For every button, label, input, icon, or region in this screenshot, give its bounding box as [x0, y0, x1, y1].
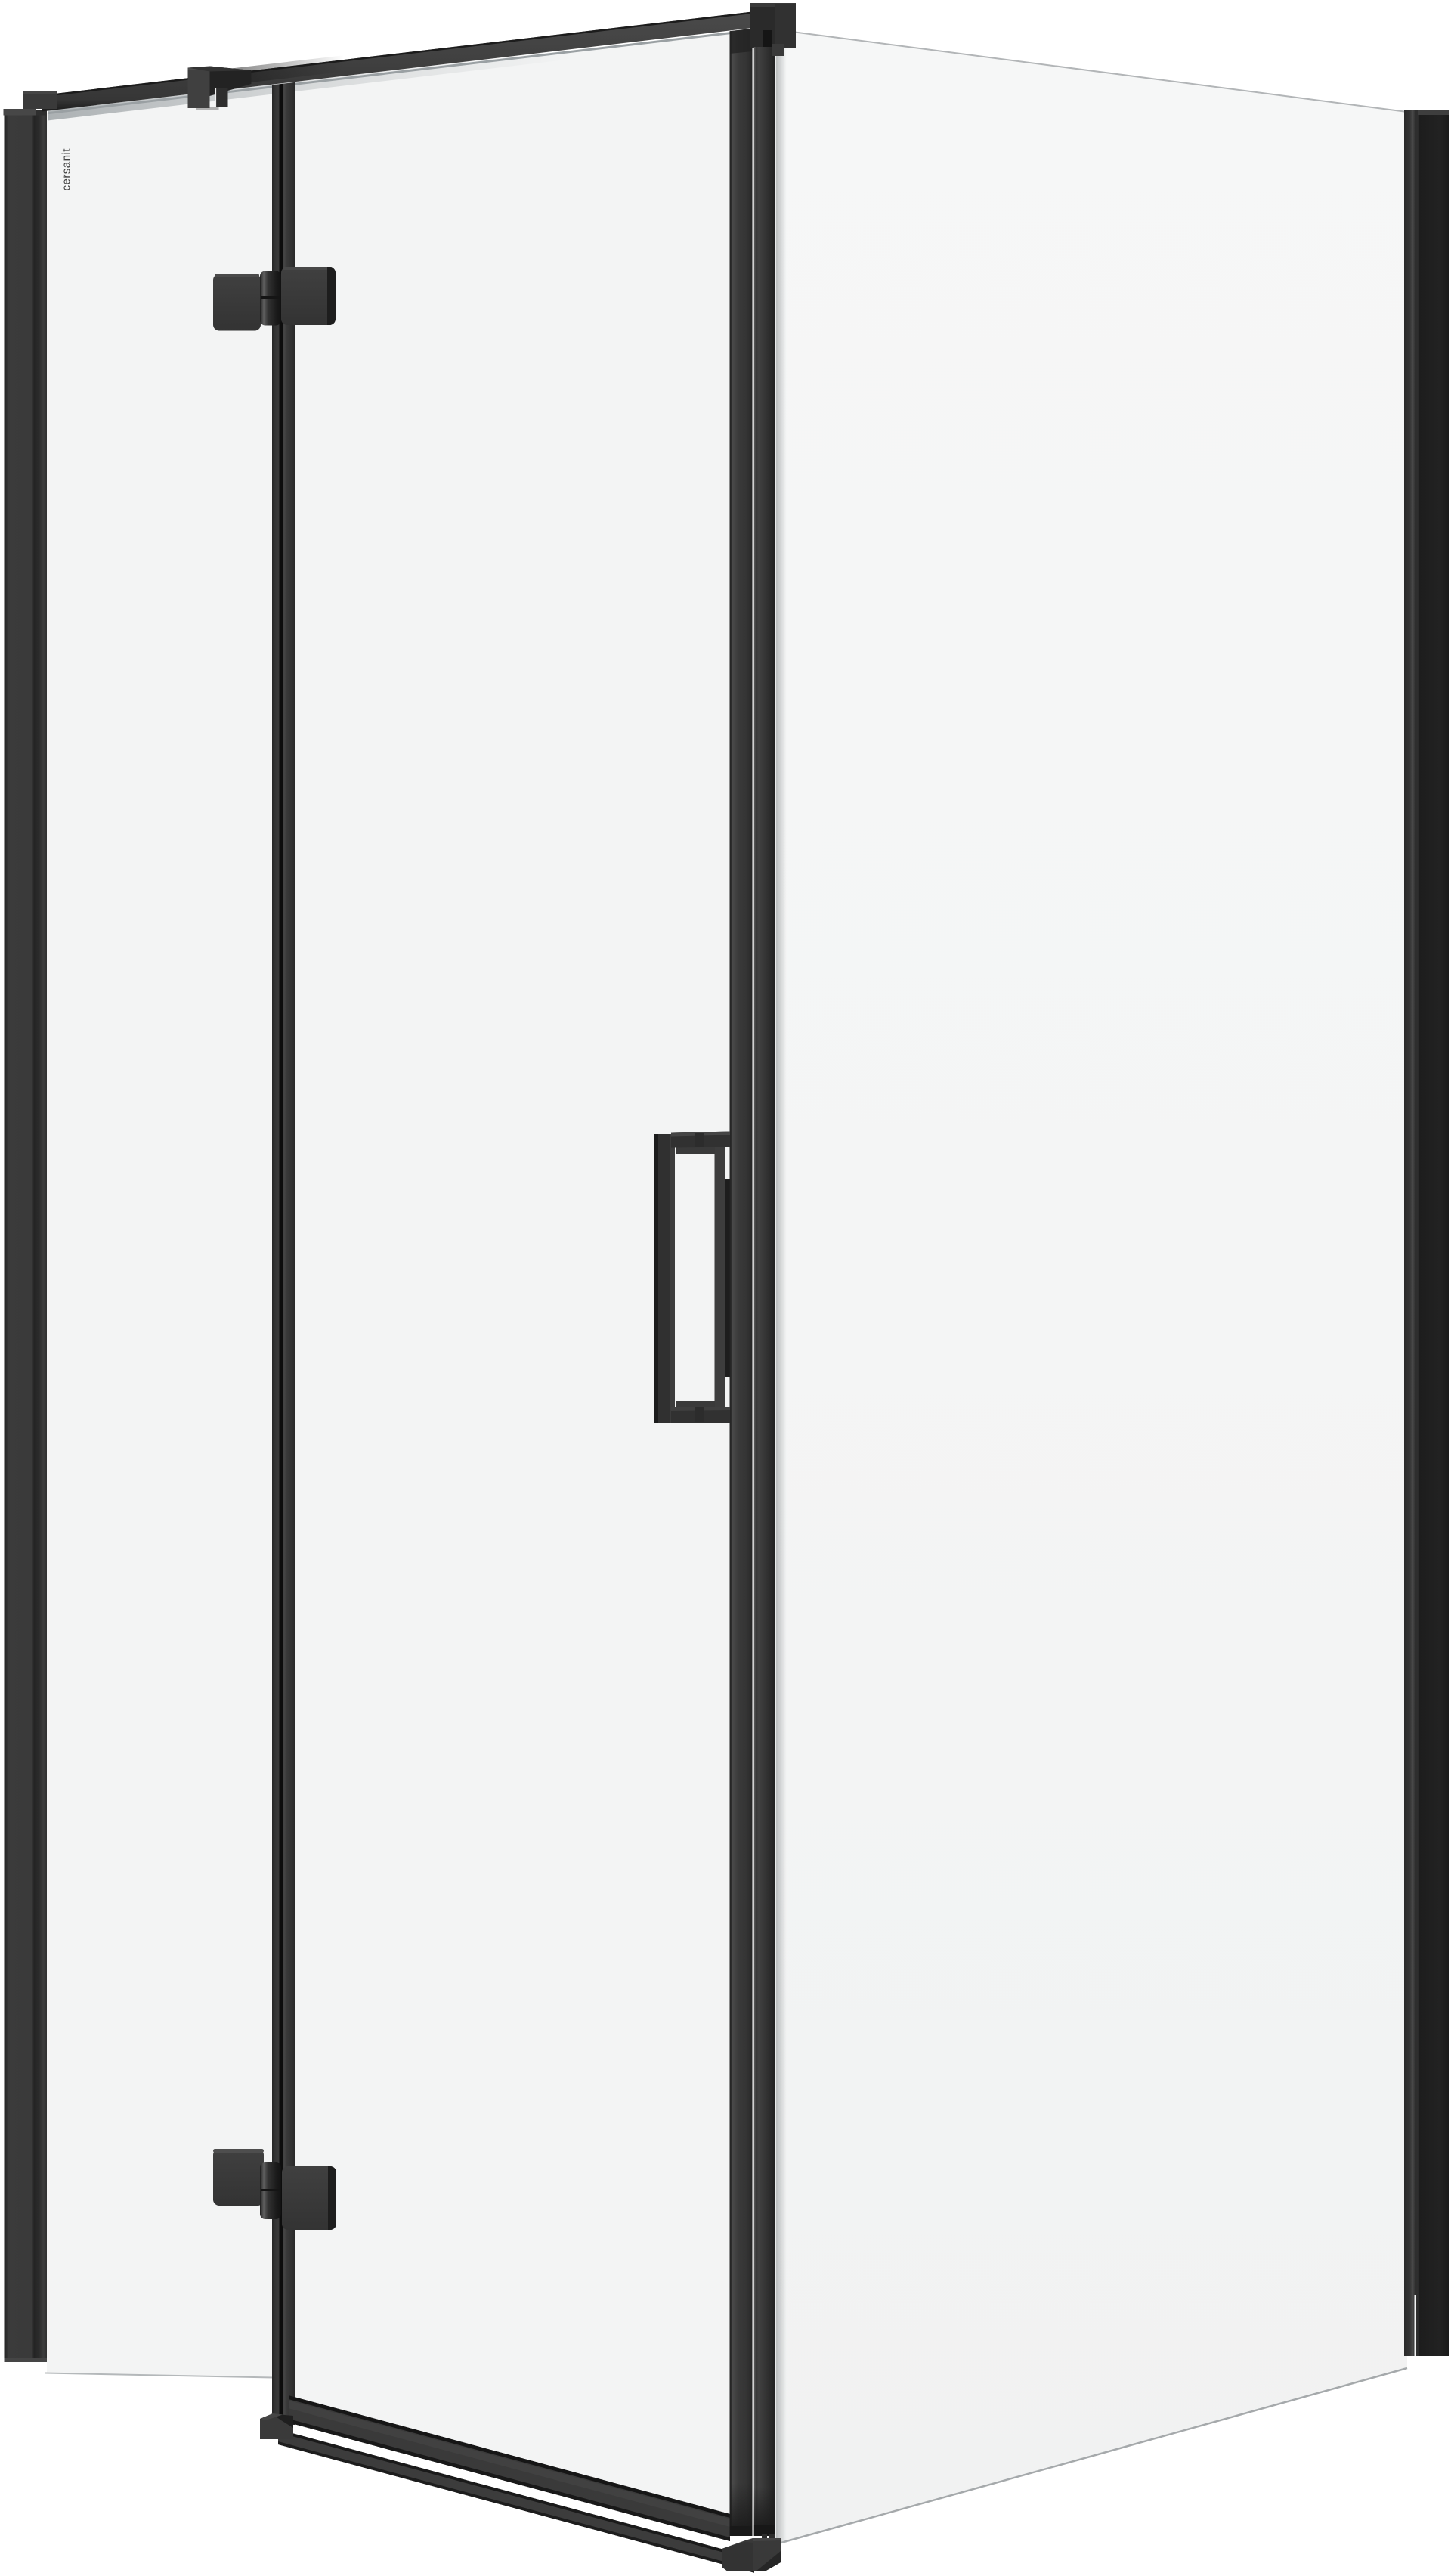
svg-text:cersanit: cersanit: [60, 148, 73, 191]
